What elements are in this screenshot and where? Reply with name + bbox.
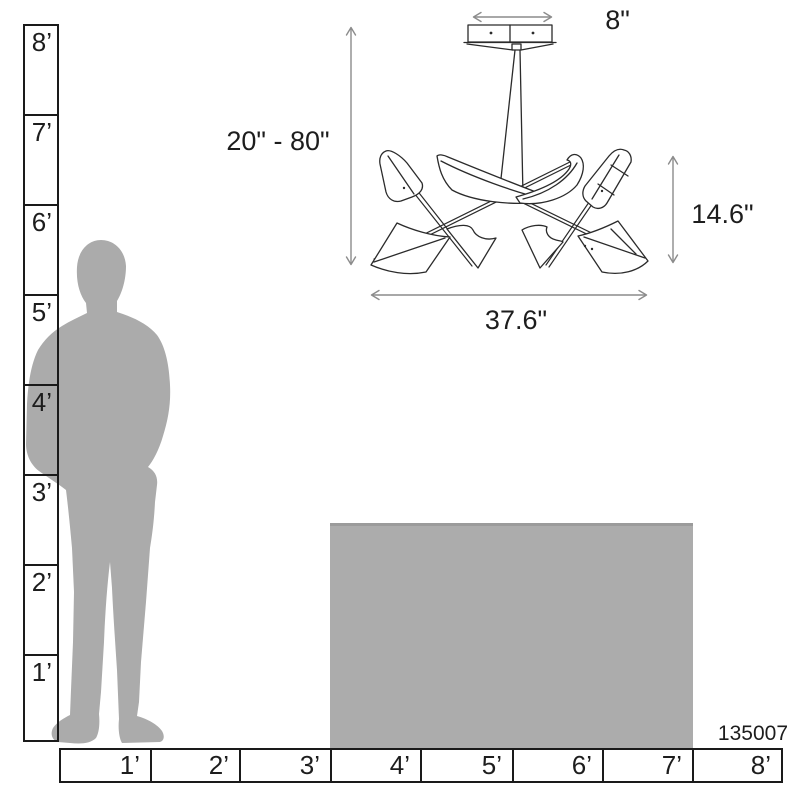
vertical-ruler-label: 2’ (25, 566, 57, 595)
vertical-ruler-label: 3’ (25, 476, 57, 505)
horizontal-ruler-segment: 4’ (330, 748, 422, 783)
vertical-ruler-segment: 5’ (23, 294, 59, 386)
product-number: 135007 (680, 722, 788, 746)
diagram-art (0, 0, 800, 800)
vertical-ruler-segment: 1’ (23, 654, 59, 742)
horizontal-ruler-label: 7’ (604, 750, 692, 781)
body-height-label: 14.6" (680, 200, 765, 230)
scale-diagram: 8’ 7’ 6’ 5’ 4’ 3’ 2’ 1’ 1’ 2’ 3’ 4’ 5’ 6… (0, 0, 800, 800)
horizontal-ruler-segment: 2’ (150, 748, 241, 783)
horizontal-ruler-label: 4’ (332, 750, 420, 781)
vertical-ruler-segment: 4’ (23, 384, 59, 476)
fixture-shades (371, 149, 648, 273)
horizontal-ruler-segment: 3’ (239, 748, 332, 783)
body-width-arrow (372, 291, 647, 300)
vertical-ruler-segment: 3’ (23, 474, 59, 566)
vertical-ruler-label: 5’ (25, 296, 57, 325)
horizontal-ruler-label: 3’ (241, 750, 330, 781)
horizontal-ruler-label: 1’ (61, 750, 150, 781)
horizontal-ruler-label: 5’ (422, 750, 512, 781)
body-width-label: 37.6" (462, 306, 570, 336)
table-top-edge (330, 523, 693, 526)
horizontal-ruler-segment: 5’ (420, 748, 514, 783)
canopy-plate (464, 25, 556, 50)
horizontal-ruler-segment: 6’ (512, 748, 604, 783)
horizontal-ruler-label: 6’ (514, 750, 602, 781)
horizontal-ruler-label: 2’ (152, 750, 239, 781)
chandelier-drawing (371, 25, 648, 274)
vertical-ruler-label: 1’ (25, 656, 57, 685)
table-silhouette (330, 523, 693, 748)
vertical-ruler-label: 8’ (25, 26, 57, 55)
vertical-ruler-segment: 7’ (23, 114, 59, 206)
canopy-width-arrow (474, 13, 552, 22)
horizontal-ruler-segment: 7’ (602, 748, 694, 783)
canopy-width-label: 8" (580, 6, 655, 36)
horizontal-ruler-segment: 1’ (59, 748, 152, 783)
body-height-arrow (669, 157, 678, 263)
horizontal-ruler-segment: 8’ (692, 748, 783, 783)
vertical-ruler-segment: 6’ (23, 204, 59, 296)
vertical-ruler-label: 4’ (25, 386, 57, 415)
vertical-ruler-label: 7’ (25, 116, 57, 145)
vertical-ruler-label: 6’ (25, 206, 57, 235)
vertical-ruler-segment: 8’ (23, 24, 59, 116)
vertical-ruler-segment: 2’ (23, 564, 59, 656)
hanging-height-label: 20" - 80" (205, 127, 351, 157)
horizontal-ruler-label: 8’ (694, 750, 781, 781)
hanging-cables (499, 50, 523, 197)
